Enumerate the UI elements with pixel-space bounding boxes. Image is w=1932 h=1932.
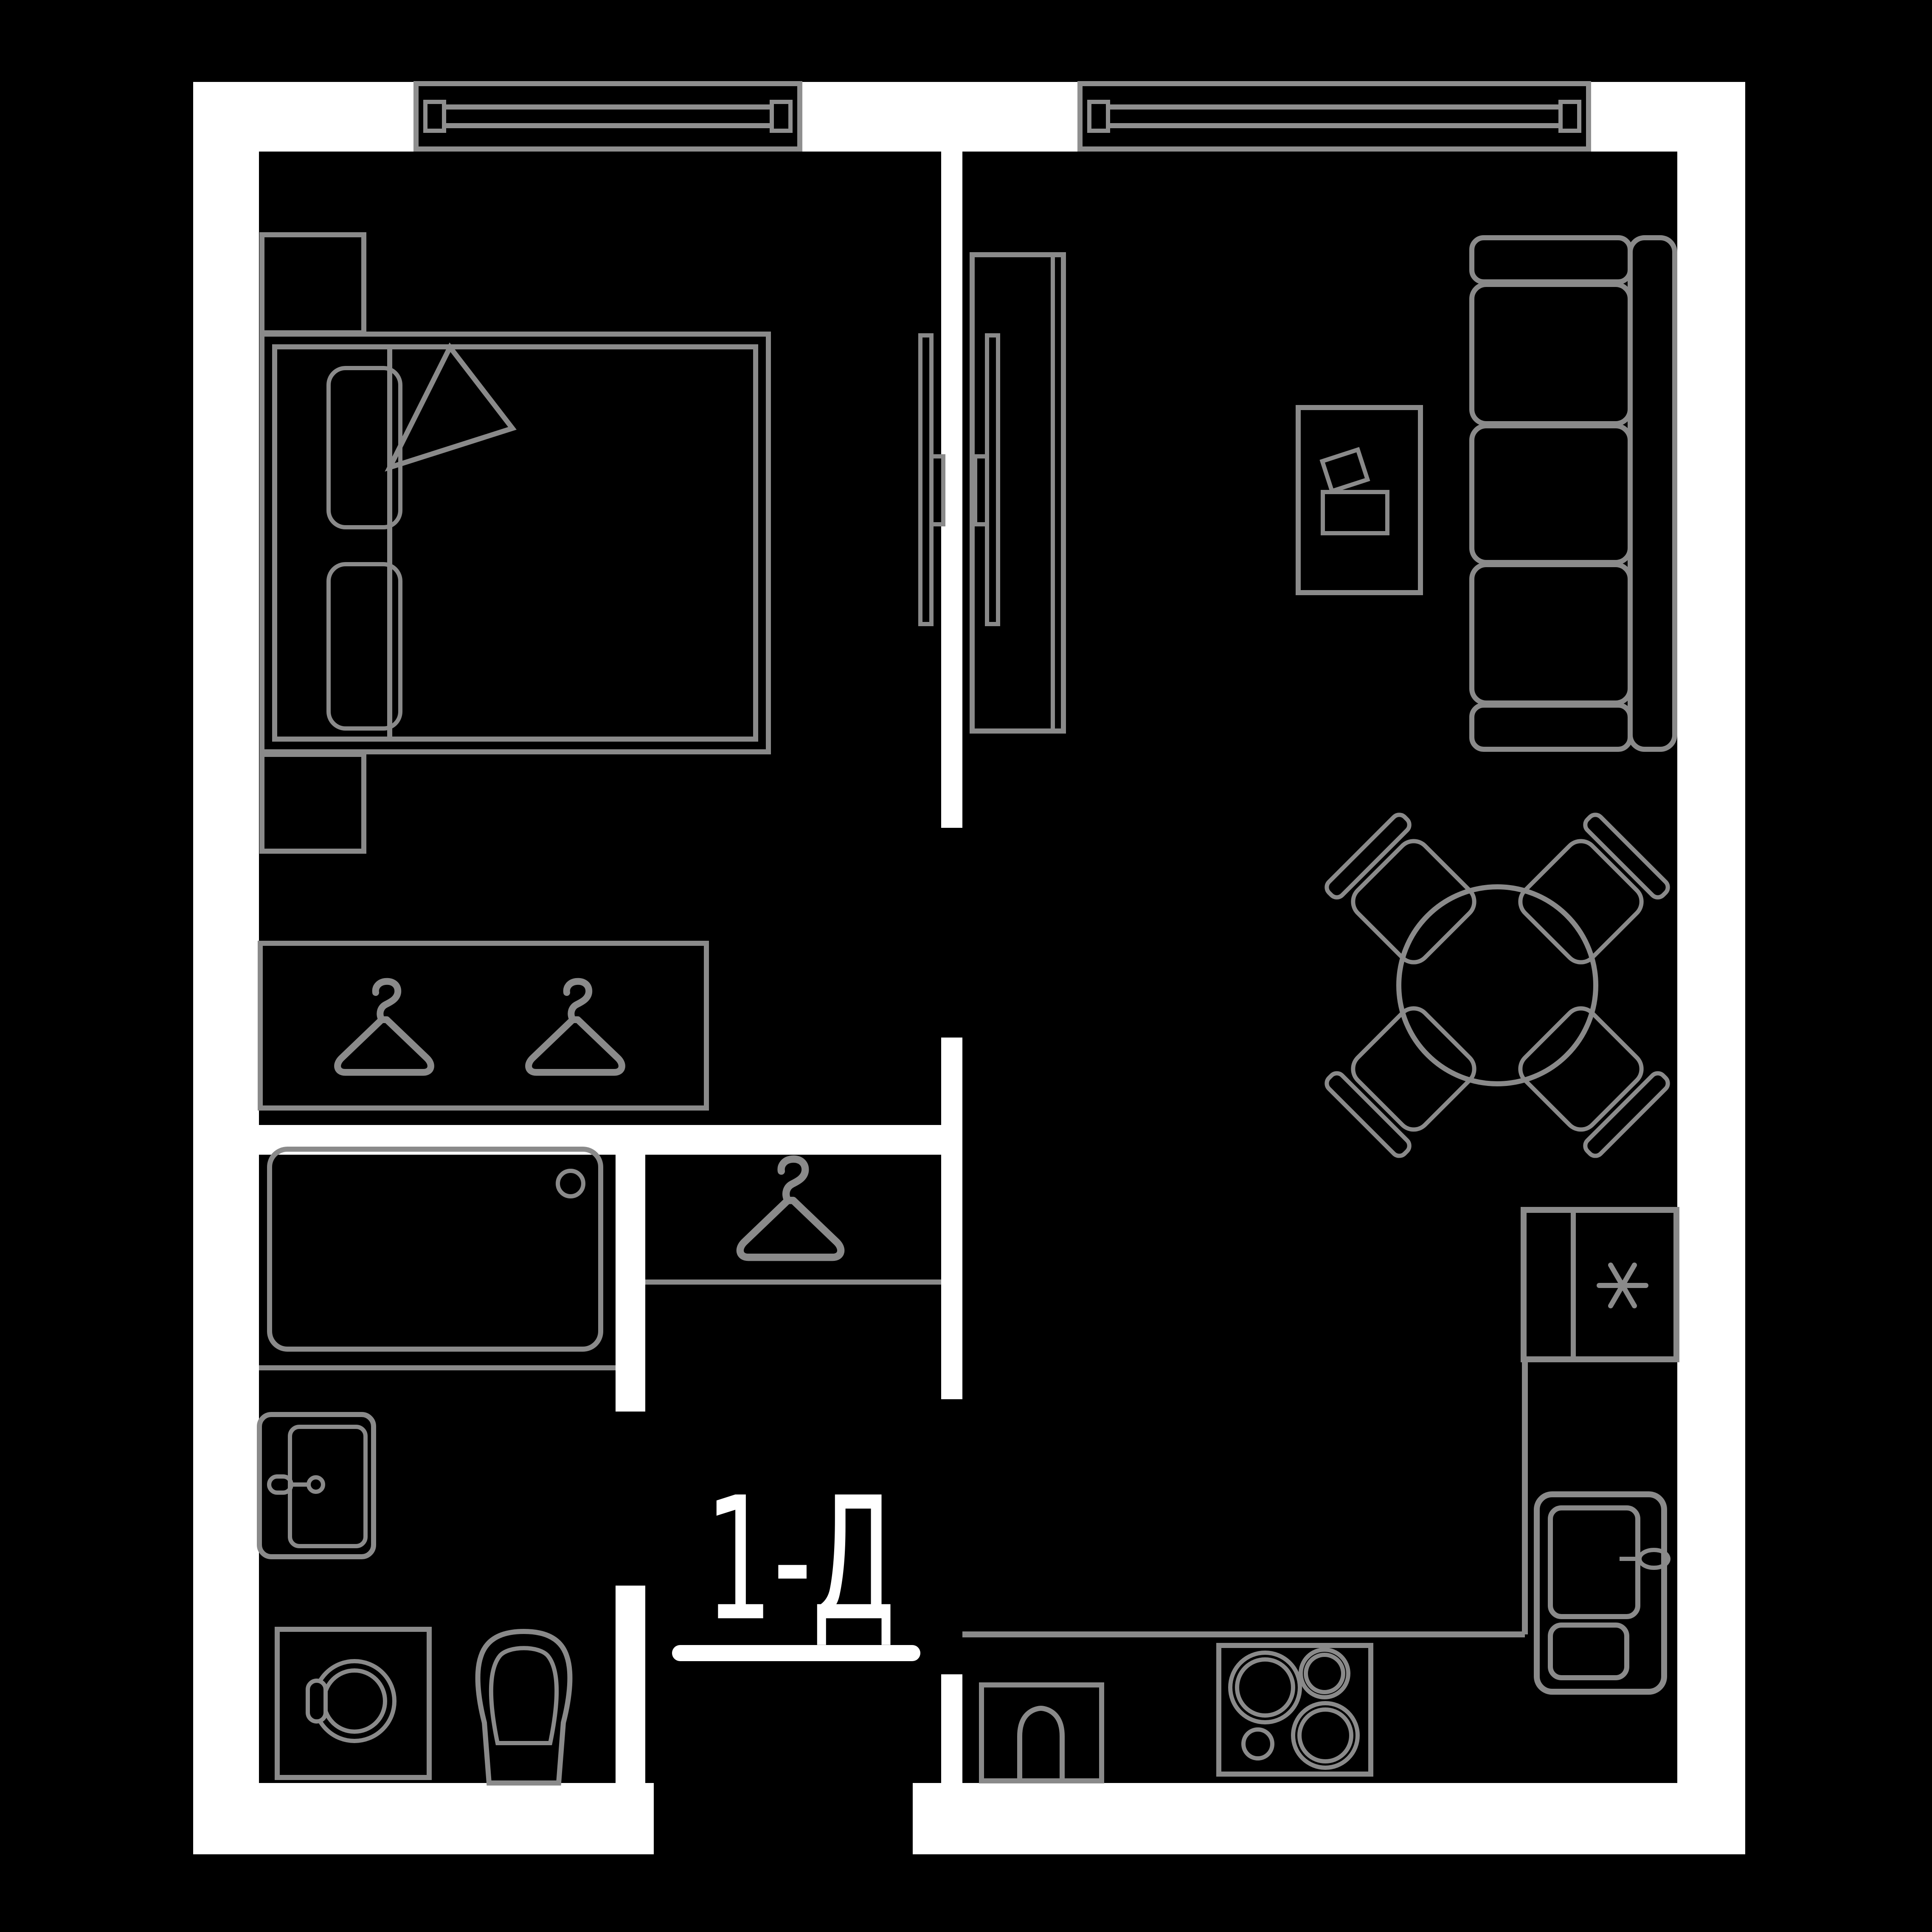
unit-label-underline — [672, 1645, 920, 1661]
floor-plan-canvas: 1-Д — [0, 0, 1932, 1932]
wall-bottom-left — [193, 1783, 654, 1854]
wall-partition-middle — [941, 1038, 962, 1399]
wall-bathroom-lower — [616, 1586, 645, 1783]
wall-left — [193, 82, 259, 1854]
unit-label: 1-Д — [672, 1461, 920, 1661]
washer-door-handle — [308, 1681, 326, 1721]
background — [0, 0, 1932, 1932]
wall-partition-lower — [941, 1674, 962, 1783]
wall-top-segment-1 — [193, 82, 416, 152]
wall-bathroom-upper — [616, 1155, 645, 1412]
floor-plan-page: 1-Д — [0, 0, 1932, 1932]
unit-label-text: 1-Д — [705, 1461, 896, 1659]
wall-top-segment-2 — [800, 82, 1080, 152]
wall-bottom-right — [913, 1783, 1745, 1854]
wall-right — [1677, 82, 1745, 1854]
